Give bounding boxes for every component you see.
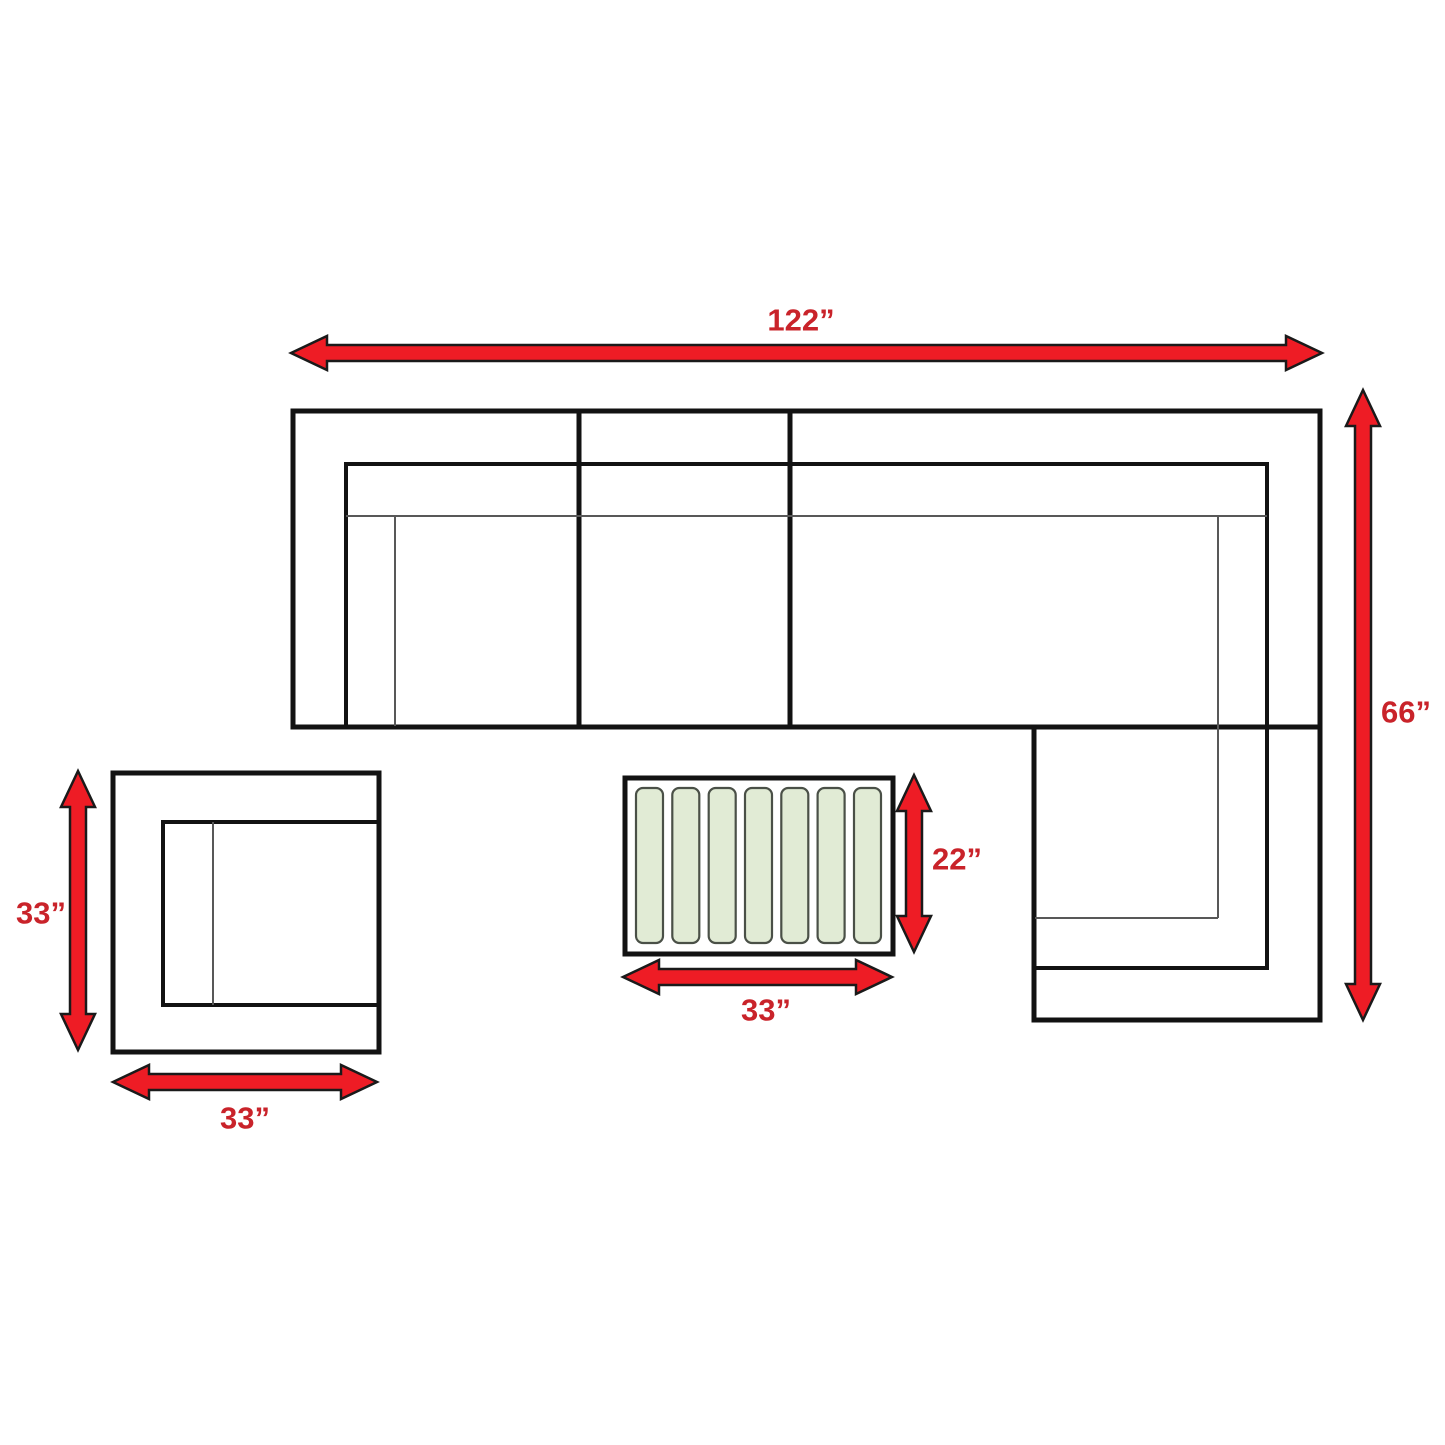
corner-unit-outline bbox=[113, 773, 379, 1052]
furniture-dimension-diagram: 122” 66” 33” 33” 22” 33” bbox=[0, 0, 1445, 1445]
table-slat bbox=[672, 788, 699, 943]
diagram-canvas bbox=[0, 0, 1445, 1445]
dimension-arrows bbox=[61, 336, 1380, 1099]
sofa-width-arrow bbox=[291, 336, 1322, 370]
corner-unit-height-arrow bbox=[61, 771, 95, 1050]
coffee-table-depth-arrow bbox=[897, 775, 931, 952]
coffee-table-width-label: 33” bbox=[741, 995, 791, 1026]
table-slat bbox=[818, 788, 845, 943]
coffee-table-width-arrow bbox=[623, 960, 892, 994]
corner-unit-side-label: 33” bbox=[16, 898, 66, 929]
table-slat bbox=[854, 788, 881, 943]
sofa-body-outline bbox=[293, 411, 1320, 727]
corner-unit-width-arrow bbox=[113, 1065, 377, 1099]
coffee-table-slats bbox=[636, 788, 881, 943]
sofa-width-label: 122” bbox=[767, 305, 834, 336]
corner-unit bbox=[113, 773, 379, 1052]
table-slat bbox=[781, 788, 808, 943]
coffee-table-depth-label: 22” bbox=[932, 844, 982, 875]
corner-unit-width-label: 33” bbox=[220, 1103, 270, 1134]
table-slat bbox=[636, 788, 663, 943]
coffee-table bbox=[625, 778, 893, 954]
table-slat bbox=[745, 788, 772, 943]
sofa-chaise-outline bbox=[1034, 727, 1320, 1020]
sofa-depth-label: 66” bbox=[1381, 697, 1431, 728]
corner-unit-seat-line bbox=[163, 822, 377, 1005]
table-slat bbox=[709, 788, 736, 943]
sofa-depth-arrow bbox=[1346, 390, 1380, 1020]
